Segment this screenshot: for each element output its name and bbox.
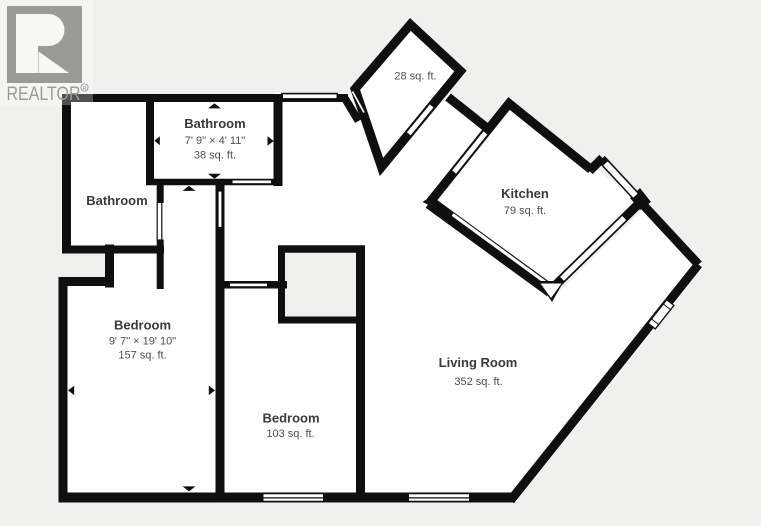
svg-text:38 sq. ft.: 38 sq. ft. [194, 150, 236, 162]
svg-text:Bathroom: Bathroom [184, 116, 245, 131]
svg-text:79 sq. ft.: 79 sq. ft. [504, 205, 546, 217]
svg-text:157 sq. ft.: 157 sq. ft. [118, 350, 166, 362]
svg-text:Kitchen: Kitchen [501, 186, 549, 201]
svg-text:9' 7" × 19' 10": 9' 7" × 19' 10" [109, 336, 176, 348]
svg-text:R: R [83, 86, 87, 92]
svg-text:Living Room: Living Room [439, 355, 518, 370]
svg-text:Bathroom: Bathroom [86, 193, 147, 208]
svg-text:28 sq. ft.: 28 sq. ft. [394, 71, 436, 83]
svg-text:Bedroom: Bedroom [114, 318, 171, 333]
svg-text:7' 9" × 4' 11": 7' 9" × 4' 11" [185, 135, 246, 147]
svg-text:Bedroom: Bedroom [262, 411, 319, 426]
svg-text:352 sq. ft.: 352 sq. ft. [454, 376, 502, 388]
svg-text:REALTOR: REALTOR [7, 83, 81, 105]
svg-text:103 sq. ft.: 103 sq. ft. [266, 428, 314, 440]
